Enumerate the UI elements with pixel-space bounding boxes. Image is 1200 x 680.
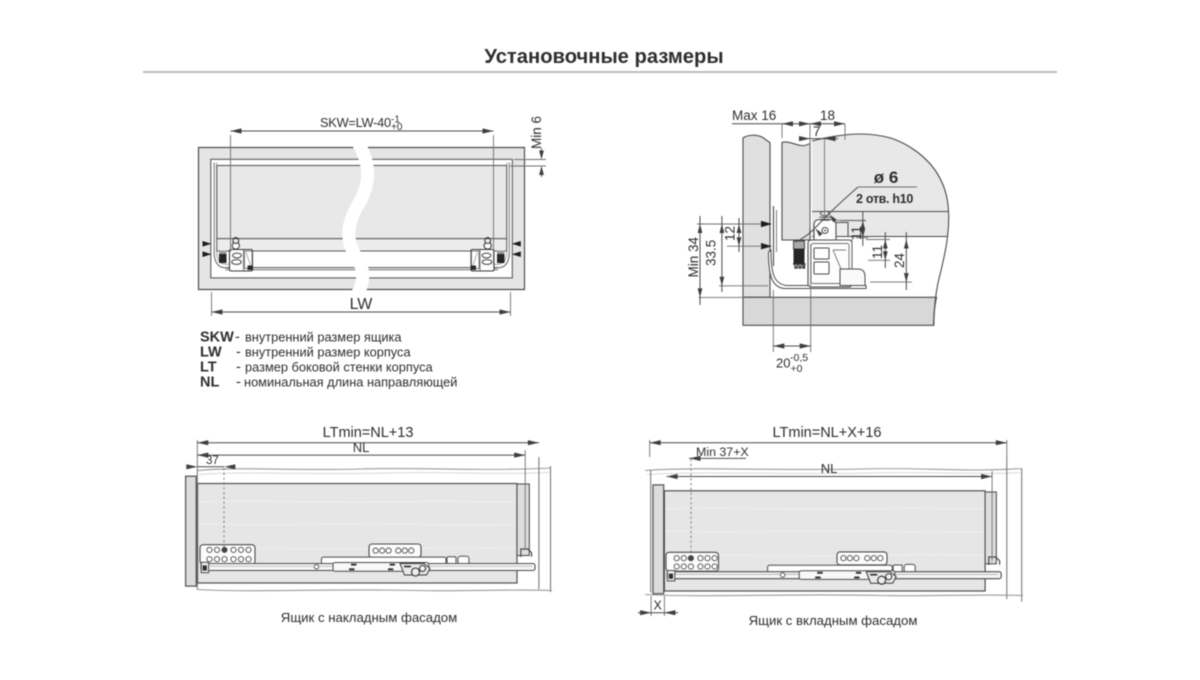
svg-text:внутренний размер ящика: внутренний размер ящика (245, 330, 402, 345)
svg-text:NL: NL (200, 374, 219, 390)
svg-text:24: 24 (892, 252, 907, 268)
svg-text:37: 37 (206, 455, 219, 467)
svg-text:11: 11 (870, 245, 885, 259)
svg-text:20: 20 (776, 355, 790, 370)
svg-text:размер боковой стенки корпуса: размер боковой стенки корпуса (245, 359, 433, 374)
svg-text:Min 37+X: Min 37+X (696, 445, 749, 459)
svg-text:Ящик с вкладным фасадом: Ящик с вкладным фасадом (749, 613, 918, 628)
svg-text:2 отв. h10: 2 отв. h10 (856, 192, 913, 206)
svg-text:LW: LW (200, 345, 222, 361)
svg-text:-: - (236, 359, 241, 375)
svg-text:Установочные размеры: Установочные размеры (484, 46, 723, 68)
svg-text:33.5: 33.5 (704, 240, 719, 266)
svg-text:X: X (654, 599, 663, 613)
svg-text:-: - (235, 330, 240, 346)
svg-text:SKW=LW-40: SKW=LW-40 (320, 115, 391, 130)
svg-text:Min 6: Min 6 (529, 116, 544, 149)
svg-text:ø 6: ø 6 (874, 168, 899, 187)
svg-text:11: 11 (849, 226, 864, 240)
svg-text:LW: LW (350, 296, 374, 313)
svg-text:-: - (236, 374, 241, 390)
svg-text:12: 12 (723, 226, 738, 241)
svg-text:LTmin=NL+13: LTmin=NL+13 (323, 425, 414, 441)
svg-text:Min 34: Min 34 (686, 236, 701, 277)
svg-text:номинальная длина направляющей: номинальная длина направляющей (244, 374, 457, 389)
svg-text:Max 16: Max 16 (732, 108, 776, 123)
svg-text:SKW: SKW (200, 330, 234, 346)
svg-text:Ящик с накладным фасадом: Ящик с накладным фасадом (281, 610, 457, 625)
svg-text:7: 7 (813, 124, 821, 139)
svg-text:внутренний размер корпуса: внутренний размер корпуса (245, 345, 411, 360)
svg-text:+0: +0 (391, 122, 403, 133)
svg-text:LTmin=NL+X+16: LTmin=NL+X+16 (773, 425, 882, 441)
svg-text:18: 18 (820, 108, 835, 123)
svg-text:LT: LT (200, 359, 217, 375)
svg-text:+0: +0 (791, 363, 803, 375)
svg-text:NL: NL (353, 440, 370, 455)
svg-text:-: - (236, 345, 241, 361)
svg-text:NL: NL (821, 461, 838, 476)
